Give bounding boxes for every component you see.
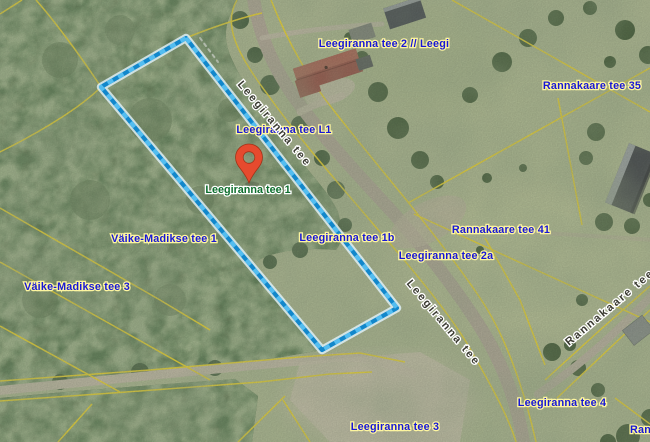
address-label: Leegiranna tee 2 // Leegi: [319, 38, 449, 50]
map-canvas[interactable]: Leegiranna tee 2 // Leegi Leegiranna tee…: [0, 0, 650, 442]
address-label: Leegiranna tee 4: [518, 397, 606, 409]
address-label: Väike-Madikse tee 3: [24, 281, 130, 293]
address-label: Leegiranna tee 2a: [399, 250, 494, 262]
address-label: Väike-Madikse tee 1: [111, 233, 217, 245]
address-label: Rannakaare tee 35: [543, 80, 641, 92]
address-label-partial: Rannak: [630, 424, 650, 436]
map-viewport[interactable]: Leegiranna tee 2 // Leegi Leegiranna tee…: [0, 0, 650, 442]
address-label: Rannakaare tee 41: [452, 224, 550, 236]
address-label: Leegiranna tee 3: [351, 421, 439, 433]
address-label: Leegiranna tee 1b: [299, 232, 394, 244]
